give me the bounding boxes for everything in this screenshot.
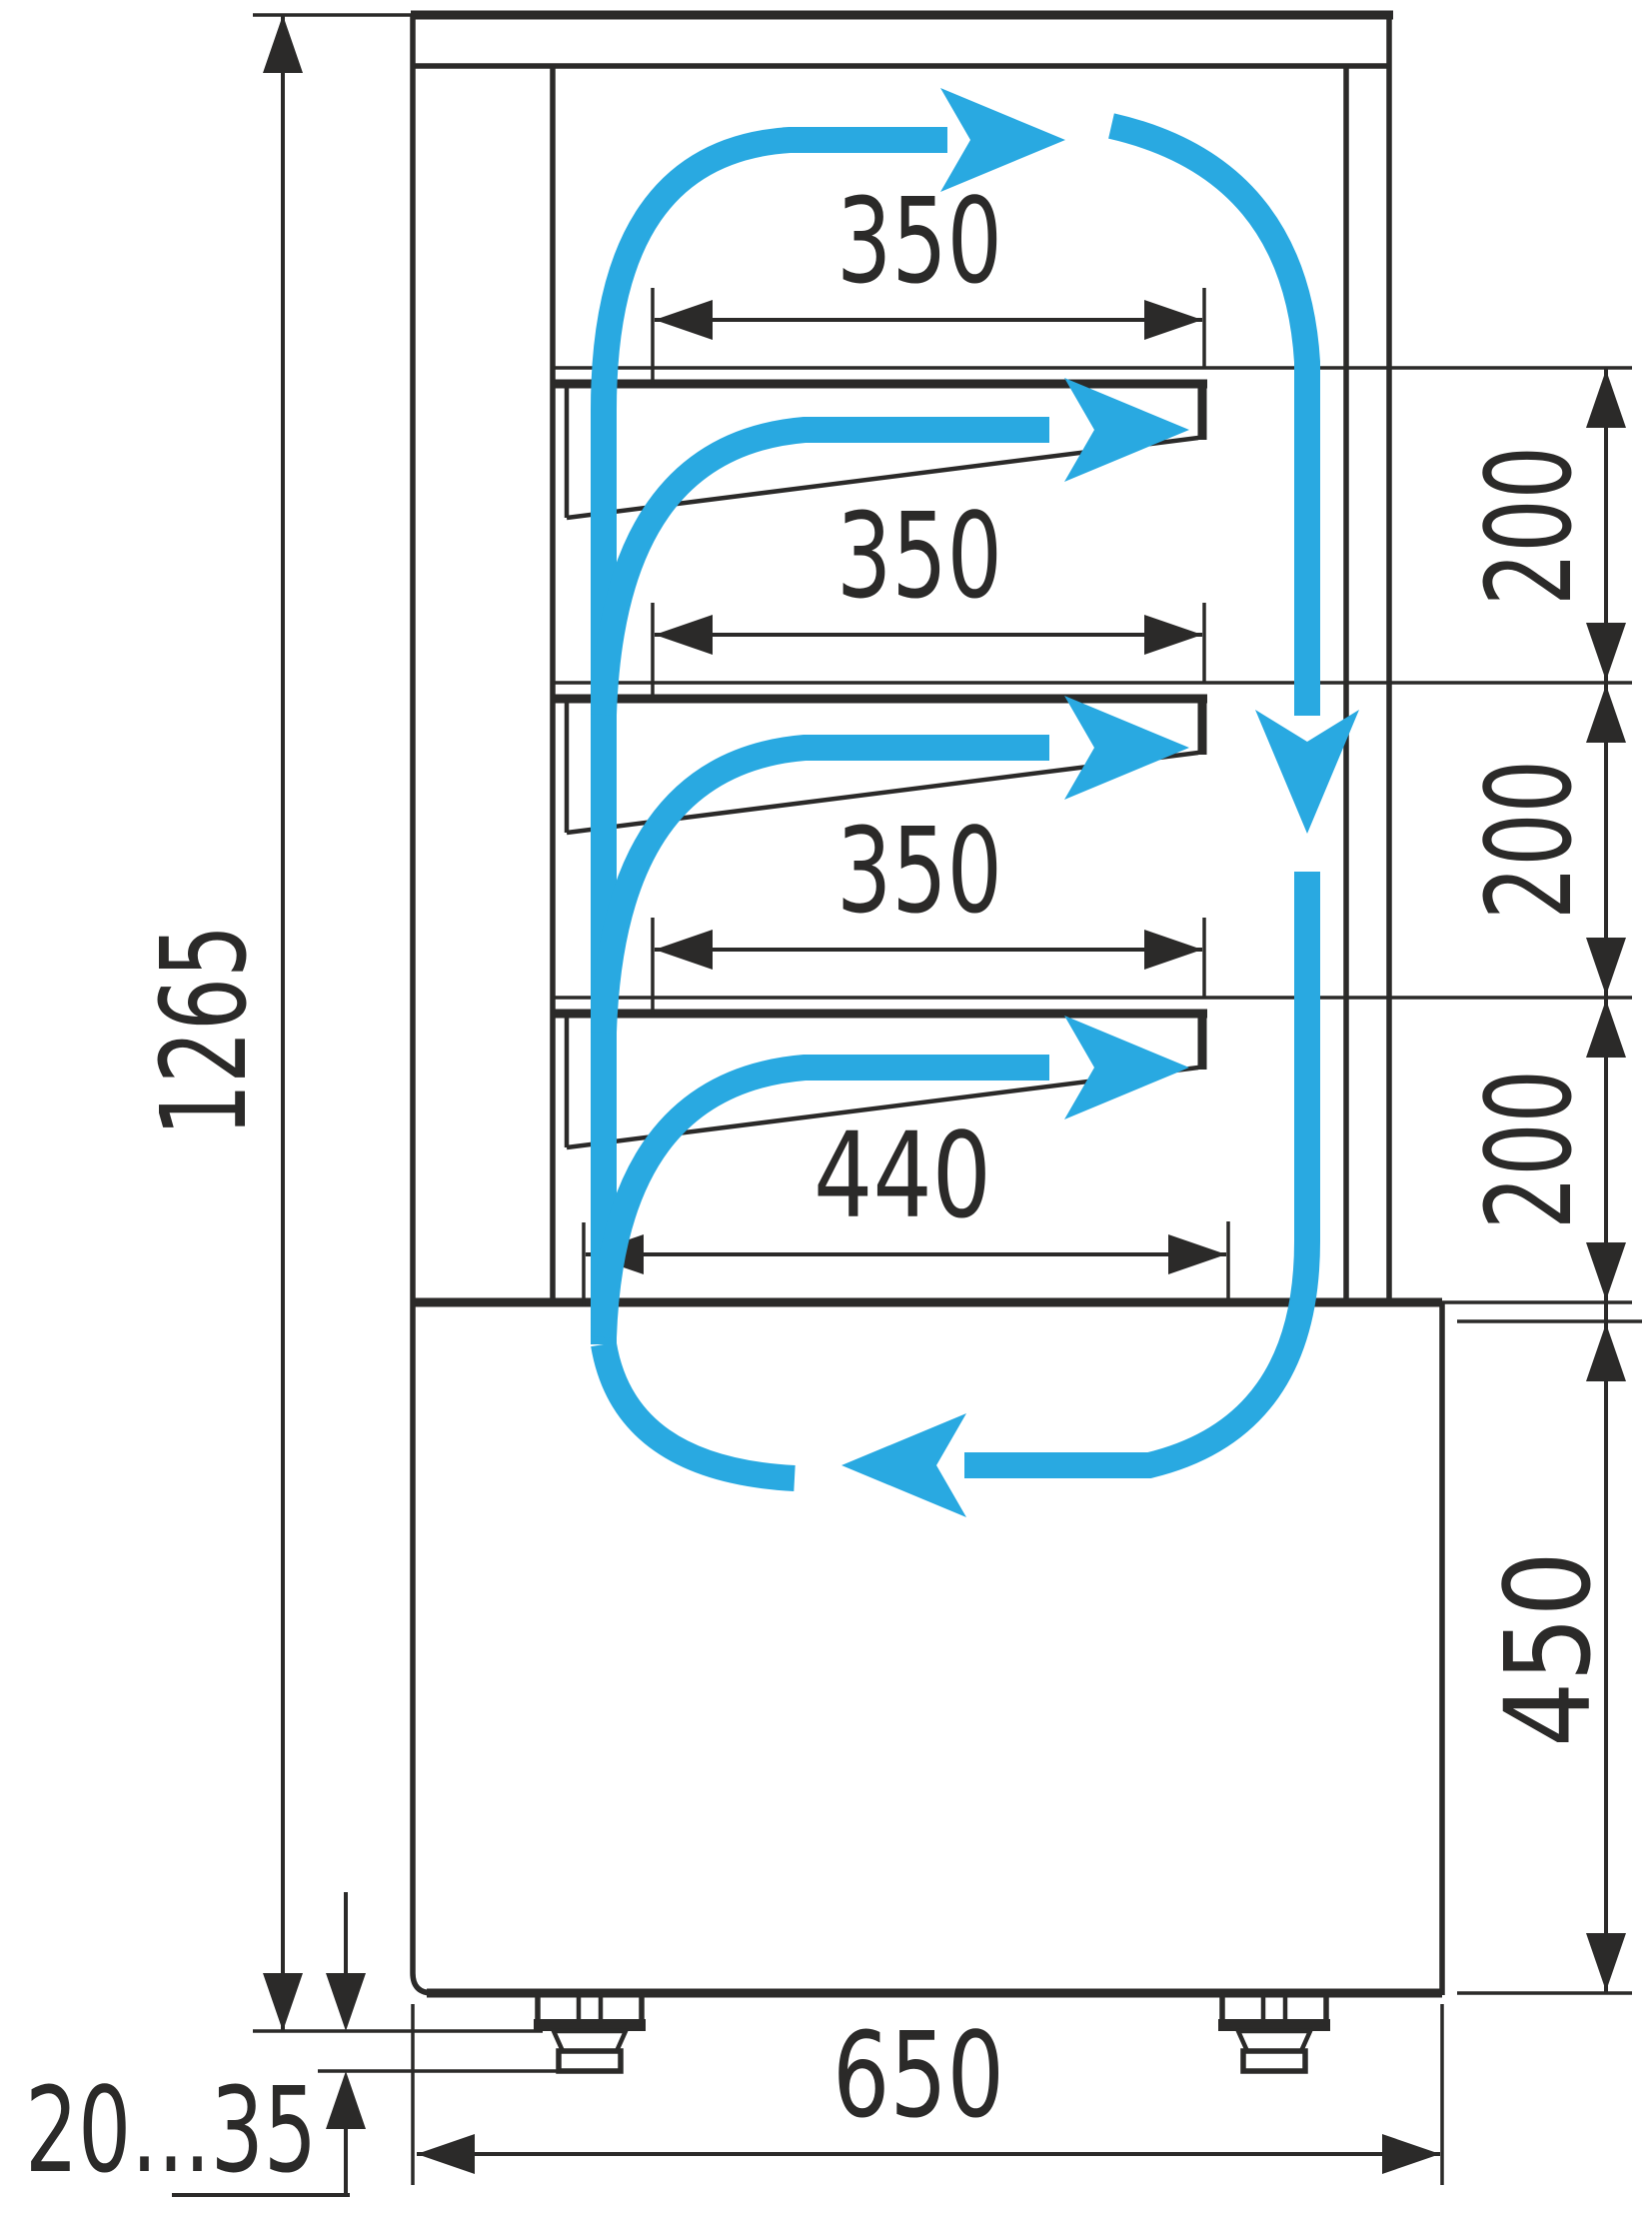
arrowhead-right-icon <box>1382 2134 1440 2174</box>
arrowhead-down-icon <box>1586 1933 1626 1991</box>
arrowhead-down-icon <box>1586 623 1626 681</box>
label-shelf-gap-1: 200 <box>1460 446 1598 606</box>
arrowhead-down-icon <box>1586 1242 1626 1300</box>
label-total-height: 1265 <box>135 925 273 1136</box>
arrowhead-up-icon <box>1586 1323 1626 1381</box>
arrowhead-left-icon <box>655 300 713 340</box>
arrowhead-right-icon <box>1144 300 1202 340</box>
arrowhead-right-icon <box>1144 615 1202 655</box>
dim-shelf-depth-2: 350 <box>653 487 1204 699</box>
technical-drawing-page: 1265 350 350 350 <box>0 0 1652 2213</box>
arrowhead-left-icon <box>655 930 713 970</box>
label-shelf-depth-3: 350 <box>836 802 1002 940</box>
airflow-arrow-shelf-3-icon <box>1064 1016 1189 1119</box>
arrowhead-down-icon <box>263 1973 303 2031</box>
airflow-arrow-top-icon <box>940 88 1065 192</box>
dim-shelf-depth-1: 350 <box>653 172 1204 384</box>
leg-left <box>534 1995 646 2071</box>
leg-right <box>1218 1995 1330 2071</box>
dim-shelf-depth-3: 350 <box>653 802 1204 1014</box>
label-foot-adjust: 20...35 <box>25 2061 317 2199</box>
airflow-arrow-shelf-2-icon <box>1064 696 1189 800</box>
label-shelf-gap-2: 200 <box>1460 760 1598 920</box>
cabinet-structure <box>411 15 1442 1995</box>
label-base-depth: 650 <box>832 2006 1004 2144</box>
label-shelf-depth-1: 350 <box>836 172 1002 310</box>
arrowhead-up-icon <box>1586 370 1626 428</box>
arrowhead-right-icon <box>1144 930 1202 970</box>
arrowhead-down-icon <box>326 1973 366 2031</box>
airflow-arrow-left-icon <box>841 1413 966 1517</box>
arrowhead-up-icon <box>1586 685 1626 743</box>
airflow-return-curve <box>604 1344 795 1478</box>
arrowhead-right-icon <box>1168 1234 1226 1274</box>
label-bottom-shelf-depth: 440 <box>814 1106 991 1244</box>
display-case-diagram: 1265 350 350 350 <box>0 0 1652 2213</box>
arrowhead-up-icon <box>263 15 303 73</box>
arrowhead-left-icon <box>417 2134 475 2174</box>
label-base-height: 450 <box>1479 1551 1617 1747</box>
airflow-return-path <box>964 872 1307 1465</box>
arrowhead-up-icon <box>1586 1000 1626 1058</box>
arrowhead-up-icon <box>326 2071 366 2129</box>
dimension-annotations: 1265 350 350 350 <box>25 15 1642 2199</box>
arrowhead-down-icon <box>1586 938 1626 996</box>
arrowhead-left-icon <box>655 615 713 655</box>
label-shelf-gap-3: 200 <box>1460 1070 1598 1229</box>
label-shelf-depth-2: 350 <box>836 487 1002 625</box>
airflow-arrow-shelf-1-icon <box>1064 378 1189 482</box>
dim-right-chain: 200 200 200 450 <box>1442 368 1642 1993</box>
dim-total-height: 1265 <box>135 15 543 2031</box>
